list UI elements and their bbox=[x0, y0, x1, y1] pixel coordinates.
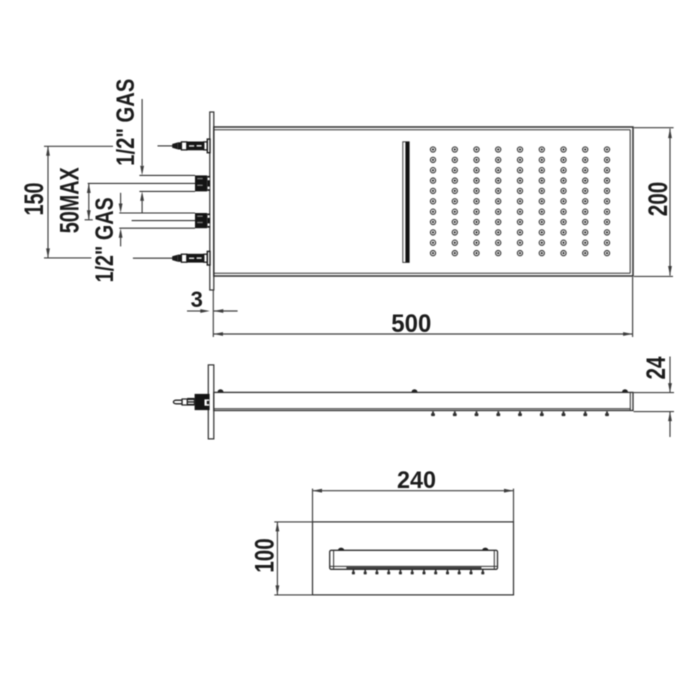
svg-text:500: 500 bbox=[391, 310, 431, 338]
svg-text:50MAX: 50MAX bbox=[55, 167, 85, 233]
svg-text:24: 24 bbox=[641, 357, 671, 380]
svg-text:1/2" GAS: 1/2" GAS bbox=[91, 197, 119, 282]
svg-text:240: 240 bbox=[397, 467, 436, 494]
svg-text:150: 150 bbox=[19, 183, 49, 216]
svg-text:100: 100 bbox=[250, 538, 280, 572]
svg-text:1/2" GAS: 1/2" GAS bbox=[112, 79, 140, 166]
svg-text:200: 200 bbox=[643, 182, 673, 217]
svg-text:3: 3 bbox=[191, 287, 203, 312]
